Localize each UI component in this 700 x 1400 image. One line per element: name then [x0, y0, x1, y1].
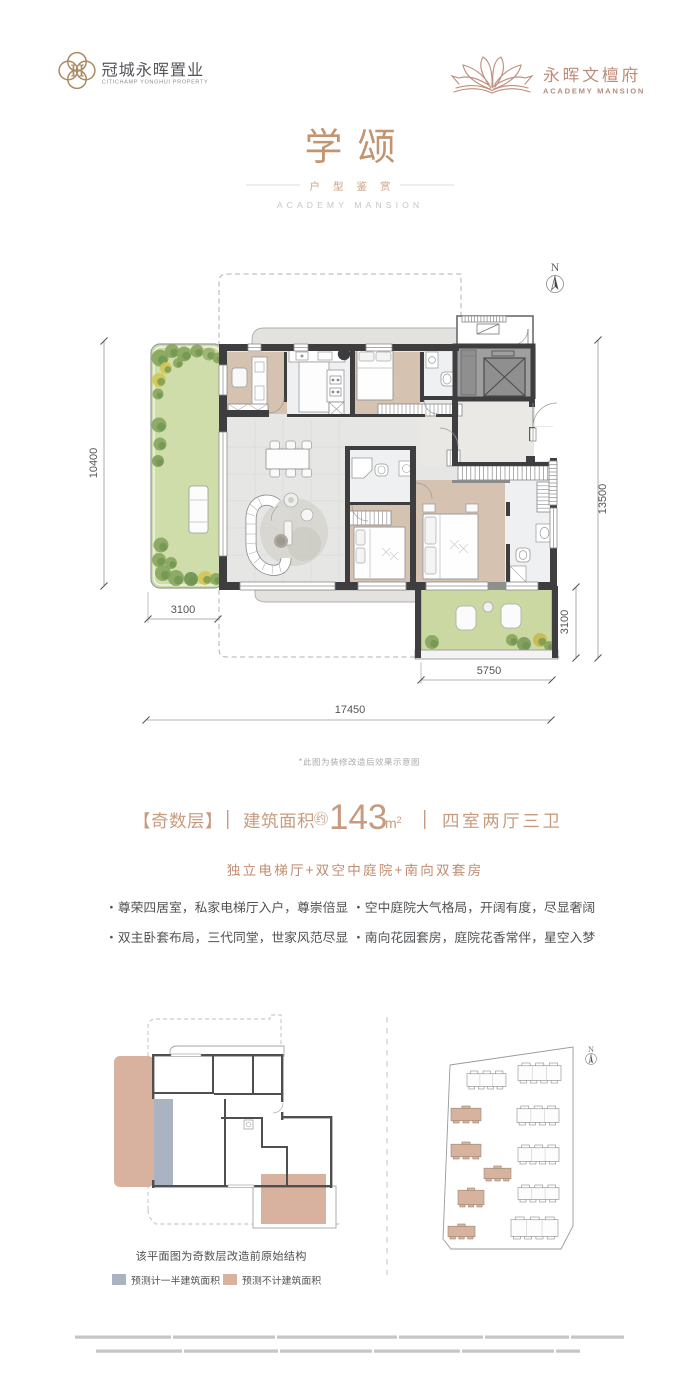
svg-text:17450: 17450: [335, 704, 366, 716]
svg-text:N: N: [551, 260, 560, 274]
svg-text:5750: 5750: [477, 665, 501, 677]
svg-text:CITICHAMP YONGHUI PROPERTY: CITICHAMP YONGHUI PROPERTY: [102, 80, 209, 86]
svg-text:ACADEMY MANSION: ACADEMY MANSION: [543, 87, 645, 96]
svg-text:143: 143: [329, 798, 387, 837]
svg-text:ACADEMY MANSION: ACADEMY MANSION: [277, 200, 423, 210]
svg-text:13500: 13500: [597, 484, 609, 515]
svg-text:N: N: [588, 1045, 594, 1054]
svg-text:3100: 3100: [171, 604, 195, 616]
svg-text:3100: 3100: [559, 610, 571, 634]
svg-text:m2: m2: [385, 815, 402, 831]
svg-text:10400: 10400: [88, 448, 100, 479]
